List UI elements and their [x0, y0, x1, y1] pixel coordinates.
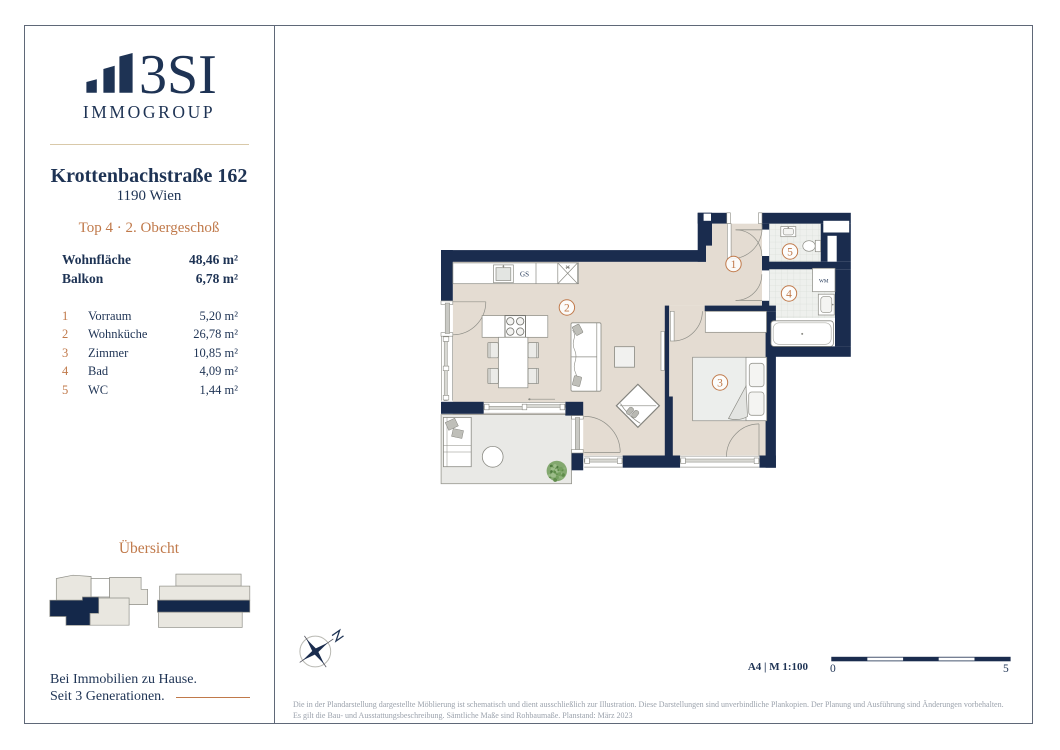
svg-text:2: 2 [564, 303, 570, 315]
svg-text:5: 5 [787, 247, 793, 259]
svg-text:1: 1 [731, 259, 737, 271]
svg-text:3: 3 [717, 378, 723, 390]
svg-text:GS: GS [520, 271, 529, 279]
svg-text:4: 4 [786, 289, 792, 301]
svg-text:WM: WM [819, 279, 829, 285]
